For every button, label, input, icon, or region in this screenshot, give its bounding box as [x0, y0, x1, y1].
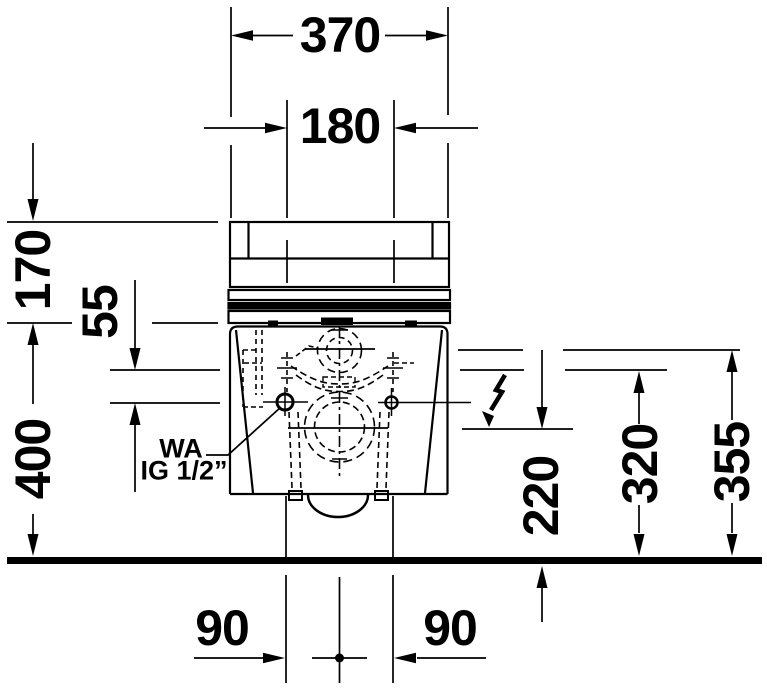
hinge-tab-left [268, 321, 278, 327]
hose-right [377, 412, 389, 488]
thread-size-label: IG 1/2” [140, 458, 227, 485]
arrowhead-down-icon [28, 534, 39, 556]
arrowhead-up-icon [727, 350, 738, 372]
cistern-box [230, 222, 449, 287]
dim-90-left-label: 90 [195, 603, 249, 653]
hose-end-right [375, 491, 388, 500]
technical-drawing-canvas: 370 180 170 55 400 220 320 355 90 90 WA … [0, 0, 767, 688]
hinge-tab-center [321, 318, 353, 326]
hinge-tab-right [405, 321, 417, 327]
floor-line [7, 557, 762, 564]
center-mark-dot [335, 654, 344, 663]
arrowhead-down-icon [28, 199, 39, 221]
drawing-linework [0, 0, 767, 688]
dim-90-right-label: 90 [423, 603, 477, 653]
dim-top-height [28, 143, 39, 221]
arrowhead-right-icon [426, 30, 448, 41]
dim-fixing-centers-label: 180 [300, 101, 380, 151]
arrowhead-up-icon [28, 323, 39, 345]
seat-shadow-band [229, 303, 451, 309]
dim-320-label: 320 [615, 424, 665, 504]
outlet-arc [308, 495, 368, 517]
arrowhead-left-icon [394, 123, 416, 134]
hidden-internals [243, 326, 471, 500]
arrowhead-down-icon [727, 534, 738, 556]
dim-seat-drop-label: 55 [75, 285, 125, 339]
hose-left [289, 412, 301, 488]
lightning-bolt-icon [482, 375, 505, 427]
valve-assembly [243, 330, 262, 407]
arrowhead-right-icon [263, 653, 285, 664]
arrowhead-down-icon [537, 407, 548, 429]
arrowhead-right-icon [265, 123, 287, 134]
arrowhead-up-icon [634, 371, 645, 393]
dim-355-label: 355 [707, 422, 757, 502]
dim-top-height-label: 170 [8, 230, 58, 310]
dim-connection-height-label: 220 [516, 456, 566, 536]
arrowhead-left-icon [231, 30, 253, 41]
dim-overall-width-label: 370 [300, 10, 380, 60]
arrowhead-up-icon [130, 403, 141, 425]
dim-mount-height-label: 400 [8, 419, 58, 499]
lid-band [229, 290, 451, 300]
arrowhead-down-icon [130, 348, 141, 370]
arrowhead-up-icon [537, 566, 548, 588]
hose-end-left [289, 491, 302, 500]
dim-seat-drop [130, 280, 141, 492]
arrowhead-down-icon [634, 534, 645, 556]
arrowhead-left-icon [394, 653, 416, 664]
water-label-leader [206, 407, 281, 455]
